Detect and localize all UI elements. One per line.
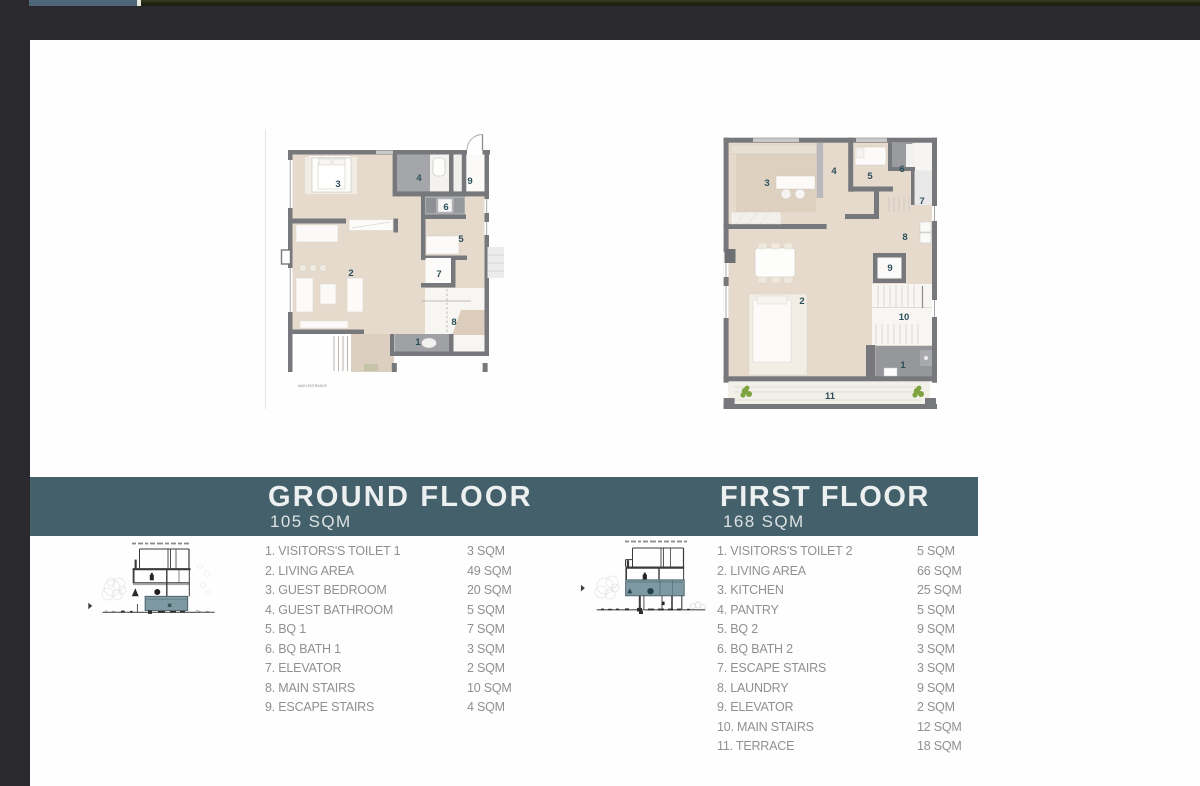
svg-text:9: 9 bbox=[887, 263, 892, 274]
svg-text:3: 3 bbox=[335, 179, 340, 190]
svg-text:6: 6 bbox=[443, 202, 448, 213]
svg-text:MAIN ENTRANCE: MAIN ENTRANCE bbox=[298, 384, 328, 388]
svg-text:9: 9 bbox=[467, 176, 472, 187]
svg-text:5: 5 bbox=[458, 234, 464, 245]
svg-text:5: 5 bbox=[867, 171, 873, 182]
svg-text:7: 7 bbox=[436, 269, 441, 280]
svg-text:1: 1 bbox=[900, 360, 906, 371]
svg-text:4: 4 bbox=[831, 166, 837, 177]
svg-text:4: 4 bbox=[416, 173, 422, 184]
svg-text:2: 2 bbox=[348, 268, 353, 279]
svg-text:7: 7 bbox=[919, 196, 924, 207]
svg-text:6: 6 bbox=[899, 164, 904, 175]
svg-text:2: 2 bbox=[799, 296, 804, 307]
svg-text:11: 11 bbox=[825, 391, 836, 402]
svg-text:3: 3 bbox=[764, 178, 769, 189]
svg-text:8: 8 bbox=[902, 232, 907, 243]
svg-text:10: 10 bbox=[899, 312, 910, 323]
svg-text:1: 1 bbox=[415, 337, 421, 348]
svg-text:8: 8 bbox=[451, 317, 456, 328]
